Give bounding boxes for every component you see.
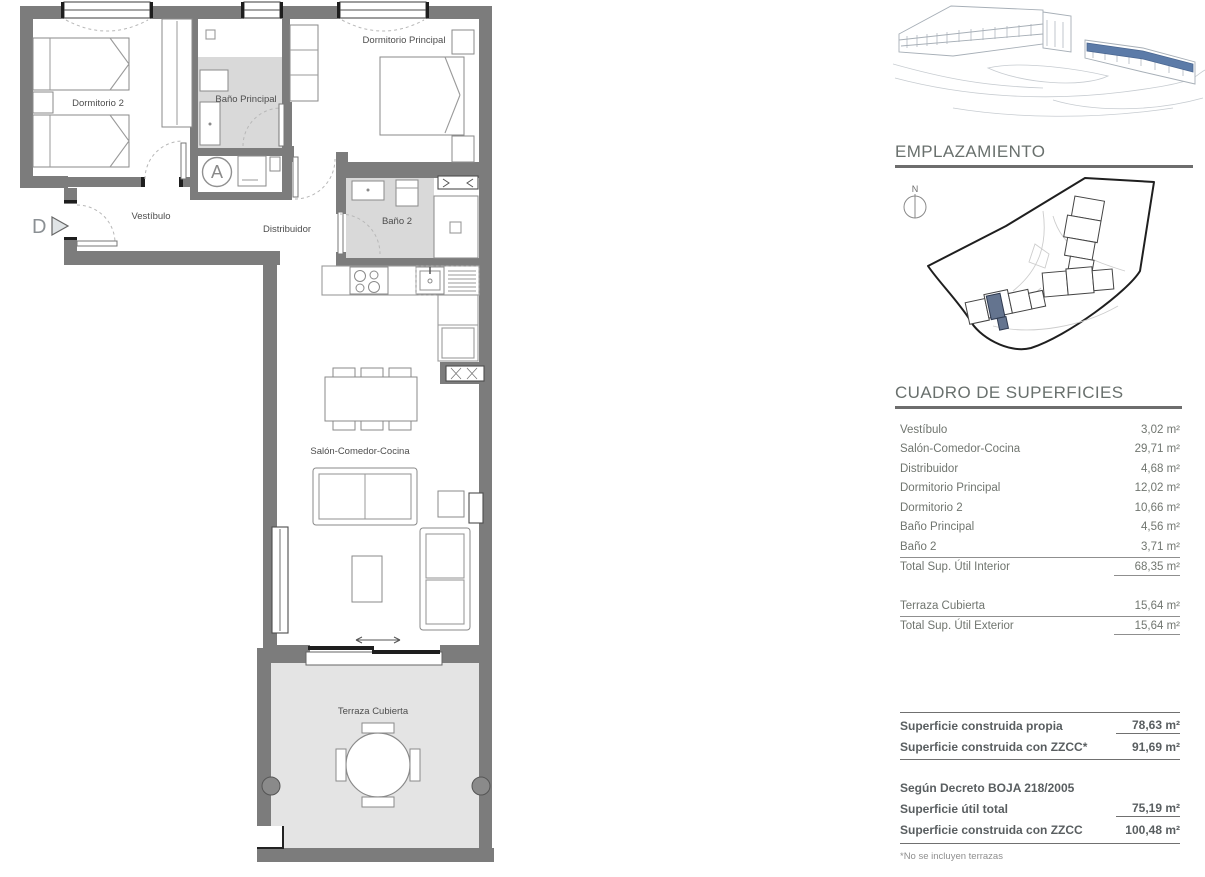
row-value: 75,19 m² <box>1116 801 1180 817</box>
row-label: Salón-Comedor-Cocina <box>900 443 1020 455</box>
floor-plan-drawing: A <box>0 0 540 877</box>
column <box>472 777 490 795</box>
label-bano-principal: Baño Principal <box>215 94 276 105</box>
row-label: Dormitorio Principal <box>900 482 1000 494</box>
entrance-door-leaf <box>77 241 117 246</box>
site-boundary <box>928 178 1154 349</box>
washer <box>238 156 266 186</box>
surface-table: Vestíbulo3,02 m² Salón-Comedor-Cocina29,… <box>900 420 1180 636</box>
summary-row: Superficie útil total75,19 m² <box>900 798 1180 819</box>
aerial-rendering <box>893 0 1205 118</box>
row-value: 78,63 m² <box>1116 718 1180 734</box>
cuadro-section: CUADRO DE SUPERFICIES <box>895 383 1182 409</box>
row-value: 15,64 m² <box>1114 618 1180 635</box>
row-label: Distribuidor <box>900 463 958 475</box>
bedroom2-door-leaf <box>181 143 186 179</box>
fridge <box>442 328 474 358</box>
label-salon: Salón-Comedor-Cocina <box>310 446 410 457</box>
row-value: 4,56 m² <box>1114 519 1180 535</box>
site-plan: N <box>893 176 1193 382</box>
bath2-door-leaf <box>338 212 343 254</box>
bathroom2-window <box>438 176 478 189</box>
table-row-total-interior: Total Sup. Útil Interior68,35 m² <box>900 557 1180 578</box>
row-label: Superficie útil total <box>900 802 1008 816</box>
row-value: 12,02 m² <box>1114 480 1180 496</box>
decreto-label: Según Decreto BOJA 218/2005 <box>900 781 1074 795</box>
table-row: Baño Principal4,56 m² <box>900 518 1180 538</box>
label-bano2: Baño 2 <box>382 216 412 227</box>
row-label: Dormitorio 2 <box>900 502 963 514</box>
cuadro-title: CUADRO DE SUPERFICIES <box>895 383 1182 403</box>
plan-sheet: A <box>0 0 1205 877</box>
bath1-door-leaf <box>279 104 284 146</box>
table-row: Baño 23,71 m² <box>900 537 1180 557</box>
bedroom2-furniture <box>33 19 192 167</box>
double-bed <box>380 57 464 135</box>
row-value: 100,48 m² <box>1116 823 1180 837</box>
north-arrow-icon: N <box>904 184 926 218</box>
emplazamiento-title: EMPLAZAMIENTO <box>895 142 1193 162</box>
title-underline <box>895 165 1193 168</box>
row-value: 29,71 m² <box>1114 441 1180 457</box>
info-column: EMPLAZAMIENTO N <box>893 0 1205 877</box>
side-table <box>438 491 464 517</box>
nightstand <box>452 136 474 162</box>
dining-set <box>325 368 417 430</box>
nightstand <box>33 92 53 113</box>
summary-row: Superficie construida con ZZCC100,48 m² <box>900 819 1180 840</box>
living-room-furniture <box>313 468 470 630</box>
table-row: Terraza Cubierta15,64 m² <box>900 596 1180 616</box>
label-terraza: Terraza Cubierta <box>338 706 409 717</box>
table-row-total-exterior: Total Sup. Útil Exterior15,64 m² <box>900 616 1180 637</box>
wardrobe <box>290 25 318 101</box>
constructed-area-block: Superficie construida propia78,63 m² Sup… <box>900 712 1180 760</box>
row-value: 91,69 m² <box>1116 740 1180 754</box>
summary-row: Superficie construida con ZZCC*91,69 m² <box>900 736 1180 757</box>
toilet <box>396 180 418 206</box>
column <box>262 777 280 795</box>
dining-table <box>325 377 417 421</box>
shower-drain <box>206 30 215 39</box>
row-label: Superficie construida propia <box>900 719 1063 733</box>
svg-text:N: N <box>912 184 919 194</box>
row-label: Total Sup. Útil Exterior <box>900 620 1014 632</box>
summary-row: Superficie construida propia78,63 m² <box>900 715 1180 736</box>
electrical-panel <box>270 157 280 171</box>
floor-plan: A <box>0 0 540 877</box>
decreto-block: Según Decreto BOJA 218/2005 Superficie ú… <box>900 777 1180 844</box>
row-label: Superficie construida con ZZCC <box>900 823 1083 837</box>
nightstand <box>452 30 474 54</box>
row-label: Superficie construida con ZZCC* <box>900 740 1087 754</box>
label-vestibulo: Vestíbulo <box>131 211 170 222</box>
table-row: Dormitorio Principal12,02 m² <box>900 479 1180 499</box>
row-value: 4,68 m² <box>1114 461 1180 477</box>
kitchen <box>322 266 479 361</box>
shower <box>434 196 478 258</box>
row-label: Total Sup. Útil Interior <box>900 561 1010 573</box>
row-value: 15,64 m² <box>1114 598 1180 614</box>
row-label: Baño Principal <box>900 521 974 533</box>
row-label: Baño 2 <box>900 541 936 553</box>
row-value: 3,71 m² <box>1114 539 1180 555</box>
label-dormitorio-principal: Dormitorio Principal <box>363 35 446 46</box>
entrance-direction-icon: D <box>32 216 68 238</box>
entrance-letter: D <box>32 216 46 238</box>
emplazamiento-section: EMPLAZAMIENTO <box>895 142 1193 168</box>
sliding-door <box>306 637 442 665</box>
table-row: Vestíbulo3,02 m² <box>900 420 1180 440</box>
summary: Superficie construida propia78,63 m² Sup… <box>900 712 1180 862</box>
table-row: Salón-Comedor-Cocina29,71 m² <box>900 440 1180 460</box>
master-door-leaf <box>293 157 298 197</box>
row-value: 10,66 m² <box>1114 500 1180 516</box>
washbasin <box>200 70 228 91</box>
label-distribuidor: Distribuidor <box>263 224 311 235</box>
sofa-2 <box>420 528 470 630</box>
terrace-table <box>346 733 410 797</box>
unit-letter: A <box>211 162 223 182</box>
table-row: Dormitorio 210,66 m² <box>900 498 1180 518</box>
table-row: Distribuidor4,68 m² <box>900 459 1180 479</box>
terrace-footnote: *No se incluyen terrazas <box>900 851 1180 862</box>
label-dormitorio2: Dormitorio 2 <box>72 98 124 109</box>
title-underline <box>895 406 1182 409</box>
row-value: 68,35 m² <box>1114 559 1180 576</box>
row-label: Terraza Cubierta <box>900 600 985 612</box>
row-label: Vestíbulo <box>900 424 947 436</box>
entry-closet: A <box>203 156 281 187</box>
drainer <box>448 271 476 291</box>
summary-row: Según Decreto BOJA 218/2005 <box>900 777 1180 798</box>
row-value: 3,02 m² <box>1114 422 1180 438</box>
coffee-table <box>352 556 382 602</box>
